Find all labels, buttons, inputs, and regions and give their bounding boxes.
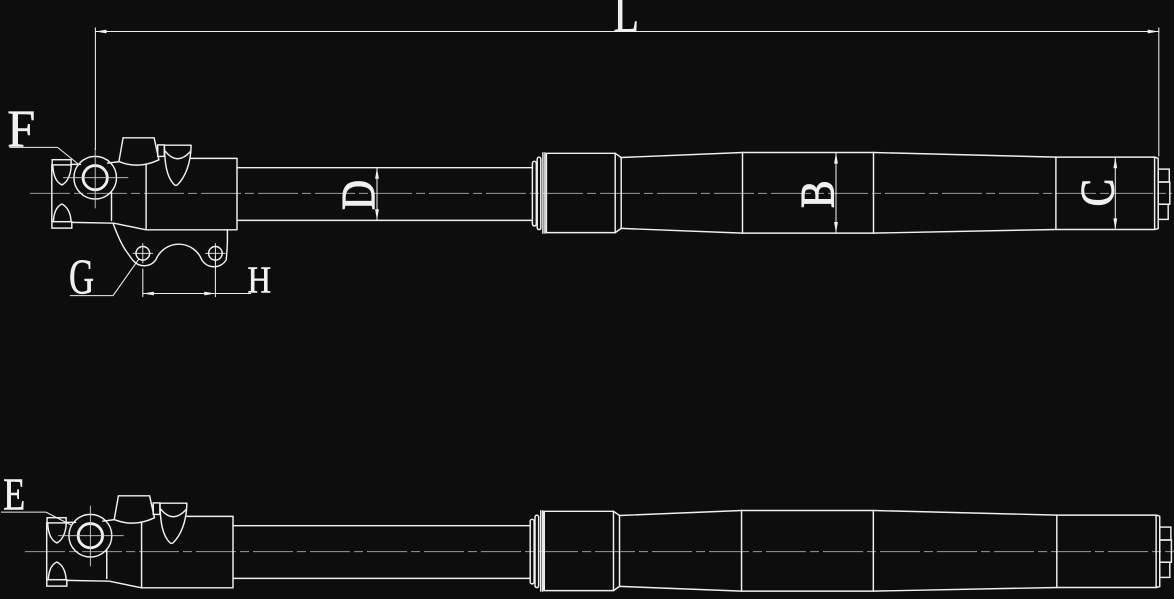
- svg-text:B: B: [793, 181, 845, 209]
- svg-text:H: H: [248, 260, 272, 302]
- svg-text:L: L: [614, 0, 640, 44]
- svg-text:C: C: [1073, 179, 1125, 207]
- svg-text:G: G: [69, 248, 94, 304]
- svg-text:F: F: [7, 101, 35, 159]
- svg-text:D: D: [334, 180, 386, 210]
- svg-text:E: E: [3, 469, 25, 520]
